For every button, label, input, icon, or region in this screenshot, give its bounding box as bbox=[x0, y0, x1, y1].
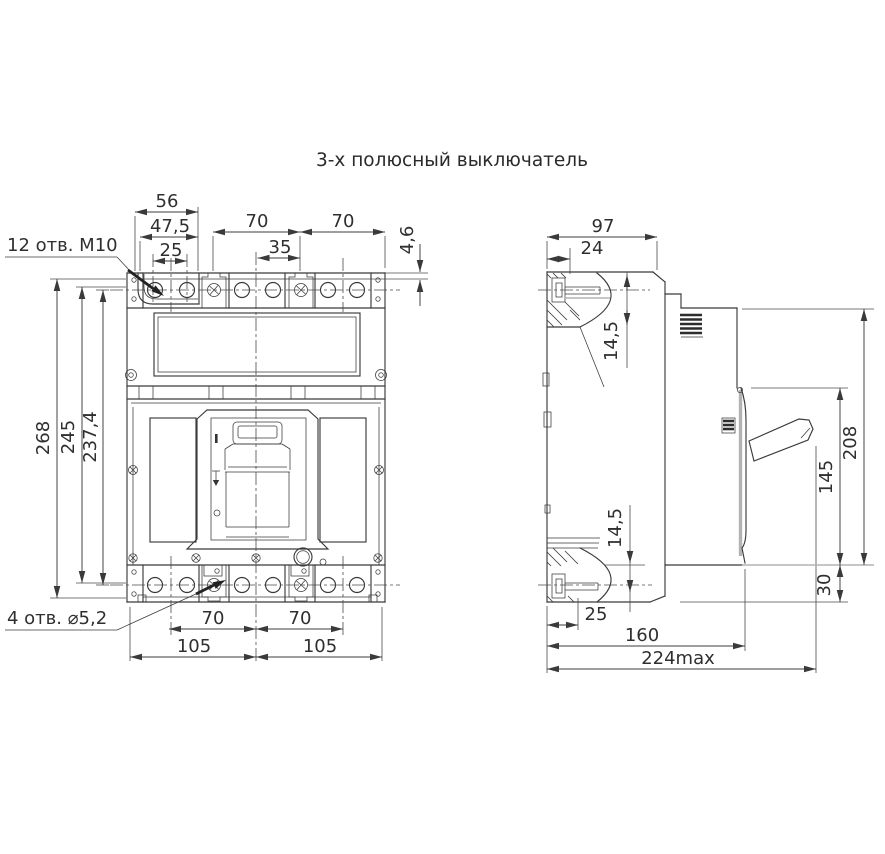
dim-25-side-label: 25 bbox=[585, 604, 608, 625]
dim-24-label: 24 bbox=[581, 238, 604, 259]
dim-224max: 224max bbox=[547, 446, 816, 673]
dim-4-6: 4,6 bbox=[371, 226, 428, 306]
front-mechanism bbox=[187, 410, 328, 549]
drawing-title: 3-х полюсный выключатель bbox=[316, 150, 588, 171]
off-mark bbox=[214, 510, 220, 516]
dim-4-6-label: 4,6 bbox=[397, 226, 418, 255]
dim-145-label: 145 bbox=[816, 460, 837, 494]
leader-arrow-icon bbox=[213, 580, 226, 589]
technical-drawing: 3-х полюсный выключатель bbox=[0, 0, 885, 854]
front-view: 56 47,5 25 70 70 35 bbox=[5, 191, 428, 664]
dim-24: 24 bbox=[547, 238, 603, 274]
label-holes-m10-text: 12 отв. М10 bbox=[7, 235, 118, 256]
trip-mark-icon bbox=[212, 471, 220, 486]
dim-160-label: 160 bbox=[625, 625, 659, 646]
dim-105-right: 105 bbox=[256, 607, 382, 661]
dim-14-5-bottom: 14,5 bbox=[605, 505, 645, 612]
dim-47-5-label: 47,5 bbox=[150, 216, 190, 237]
dim-70-top-right: 70 bbox=[300, 211, 385, 268]
dim-268-label: 268 bbox=[33, 421, 54, 455]
dim-70-top-left-label: 70 bbox=[246, 211, 269, 232]
front-bottom-terminals bbox=[110, 565, 400, 602]
toggle-handle bbox=[749, 419, 813, 461]
dim-25-side: 25 bbox=[547, 598, 607, 673]
on-mark bbox=[215, 434, 218, 443]
dim-25-top-label: 25 bbox=[160, 240, 183, 261]
handle-recess bbox=[225, 422, 290, 537]
dim-105-right-label: 105 bbox=[303, 636, 337, 657]
dim-56-label: 56 bbox=[156, 191, 179, 212]
dim-35-label: 35 bbox=[269, 237, 292, 258]
dim-224max-label: 224max bbox=[641, 648, 715, 669]
dim-14-5-top: 14,5 bbox=[601, 272, 627, 368]
dim-70-bottom-left-label: 70 bbox=[202, 608, 225, 629]
dim-237-4: 237,4 bbox=[80, 290, 112, 585]
dim-208-label: 208 bbox=[840, 426, 861, 460]
dim-30: 30 bbox=[680, 565, 848, 602]
dim-35: 35 bbox=[258, 237, 301, 258]
dim-160: 160 bbox=[547, 569, 745, 651]
dim-14-5-bottom-label: 14,5 bbox=[605, 508, 626, 548]
dim-208: 208 bbox=[742, 309, 874, 565]
dim-70-bottom-right: 70 bbox=[256, 608, 343, 629]
label-holes-5-2: 4 отв. ⌀5,2 bbox=[5, 580, 226, 630]
dim-145: 145 bbox=[751, 388, 848, 565]
side-clip-grill-icon bbox=[722, 418, 735, 433]
dim-105-left-label: 105 bbox=[177, 636, 211, 657]
dim-70-bottom-right-label: 70 bbox=[289, 608, 312, 629]
side-body-profile bbox=[543, 272, 742, 602]
side-top-terminal-section bbox=[547, 273, 611, 327]
side-bottom-terminal-section bbox=[547, 538, 611, 602]
dim-70-bottom-left: 70 bbox=[169, 608, 256, 629]
side-handle-assembly bbox=[737, 387, 813, 563]
dim-14-5-top-label: 14,5 bbox=[601, 321, 622, 361]
dim-237-4-label: 237,4 bbox=[80, 411, 101, 463]
dim-70-top-right-label: 70 bbox=[332, 211, 355, 232]
side-vent-slots-icon bbox=[680, 315, 703, 337]
dim-30-label: 30 bbox=[814, 574, 835, 597]
dim-25-top: 25 bbox=[153, 240, 187, 261]
dim-97-label: 97 bbox=[592, 216, 615, 237]
side-view: 97 24 14,5 14,5 25 160 bbox=[538, 216, 874, 673]
drawing-page: 3-х полюсный выключатель bbox=[0, 0, 885, 854]
label-holes-5-2-text: 4 отв. ⌀5,2 bbox=[7, 608, 107, 629]
dim-245-label: 245 bbox=[58, 420, 79, 454]
side-centerlines bbox=[538, 290, 652, 585]
